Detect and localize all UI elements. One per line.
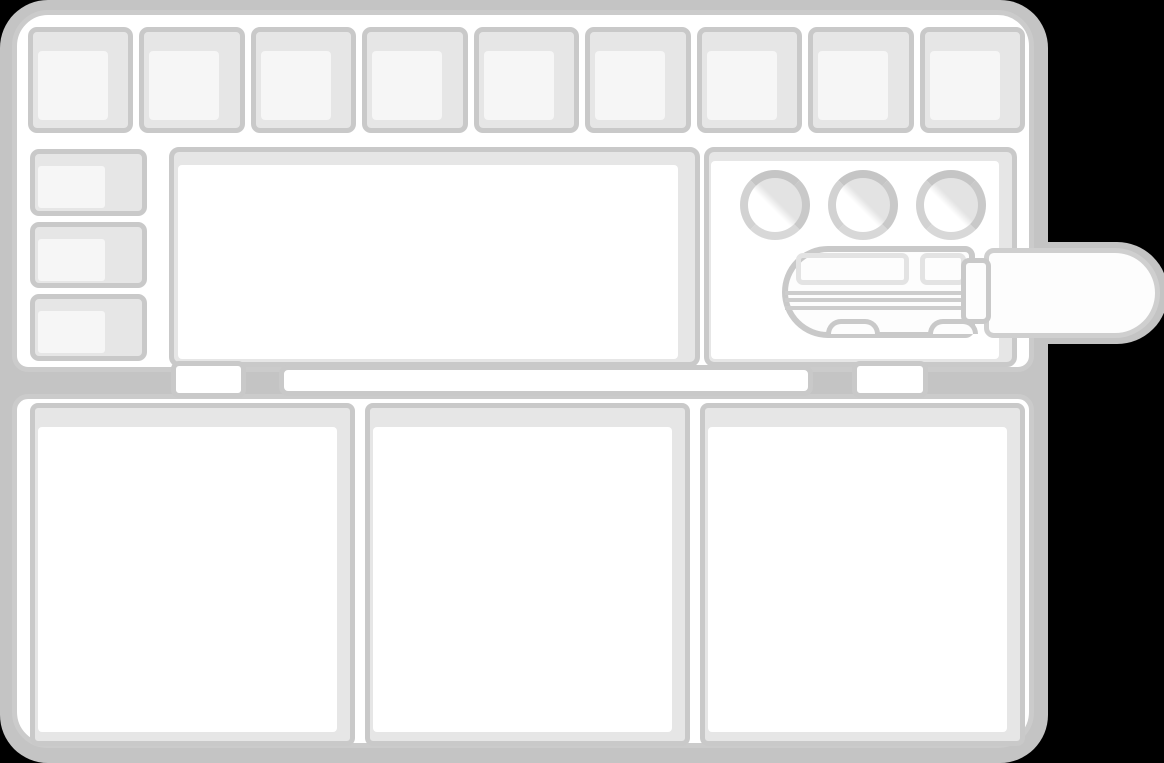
side-well-bottom <box>38 166 105 208</box>
hinge-block-left <box>171 361 246 398</box>
paint-well-bottom <box>149 51 219 120</box>
side-well <box>30 222 147 289</box>
side-well-bottom <box>38 239 105 281</box>
paint-well-bottom <box>818 51 888 120</box>
lid-side-well-column <box>30 149 147 361</box>
lid-mixing-area <box>169 147 700 367</box>
paint-well-bottom <box>595 51 665 120</box>
side-well <box>30 294 147 361</box>
round-well <box>740 170 810 240</box>
tube-label-window <box>796 253 909 285</box>
tube-cap <box>984 248 1160 338</box>
round-well-row <box>740 170 986 240</box>
paint-well <box>808 27 913 133</box>
paint-well <box>920 27 1025 133</box>
round-well <box>916 170 986 240</box>
base-mixing-wells <box>30 403 1025 746</box>
hinge-block-right <box>852 361 928 398</box>
paint-well <box>585 27 690 133</box>
side-well-bottom <box>38 311 105 353</box>
paint-well-bottom <box>930 51 1000 120</box>
tube-body <box>782 246 975 338</box>
tube-crimp-line <box>785 306 972 310</box>
tube-collar <box>961 258 991 324</box>
tube-crimp-bump <box>826 319 880 334</box>
paint-well <box>28 27 133 133</box>
hinge-bar <box>279 365 813 396</box>
paint-well-bottom <box>261 51 331 120</box>
paint-well-bottom <box>38 51 108 120</box>
mixing-well <box>700 403 1025 746</box>
palette-illustration <box>0 0 1164 763</box>
mixing-well <box>30 403 355 746</box>
tube-crimp-line <box>785 291 972 295</box>
paint-well <box>139 27 244 133</box>
tube-label-window <box>920 253 966 285</box>
tube-crimp-line <box>785 298 972 302</box>
paint-well-bottom <box>484 51 554 120</box>
mixing-well-bottom <box>373 427 672 732</box>
paint-well-bottom <box>372 51 442 120</box>
mixing-well-bottom <box>708 427 1007 732</box>
paint-well <box>697 27 802 133</box>
paint-well <box>251 27 356 133</box>
mixing-well-bottom <box>38 427 337 732</box>
lid-paint-well-row <box>28 27 1025 133</box>
round-well <box>828 170 898 240</box>
paint-well <box>474 27 579 133</box>
lid-mixing-area-surface <box>178 165 678 359</box>
paint-well-bottom <box>707 51 777 120</box>
side-well <box>30 149 147 216</box>
mixing-well <box>365 403 690 746</box>
paint-well <box>362 27 467 133</box>
